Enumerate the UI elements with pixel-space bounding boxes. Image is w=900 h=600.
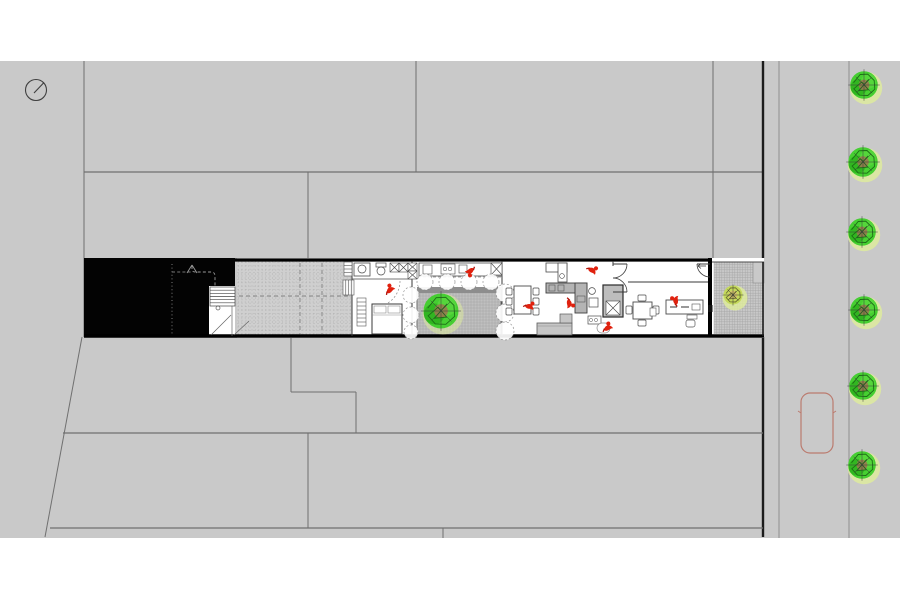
chair [638,320,646,326]
chair [626,306,632,314]
architectural-site-plan [0,0,900,600]
wc-fixture [589,298,598,307]
cabinet [650,308,656,316]
duct-box [390,263,399,272]
shrub-scallop [404,325,418,339]
dining-table [514,286,531,314]
duct-box [408,271,417,279]
toilet-bowl [377,267,385,275]
fridge [491,263,502,275]
chair [533,308,539,315]
sofa [537,323,572,335]
stairs-small [343,280,354,295]
shrub-scallop [439,274,455,290]
desk-chair [686,320,695,327]
basin [589,288,596,295]
office-table [633,302,652,319]
keyboard-tray [687,315,697,319]
shower [606,301,620,315]
bed [372,304,402,334]
gate-pivot [708,305,713,312]
toilet-tank [376,263,386,267]
chair [533,288,539,295]
duct-box [399,263,408,272]
chair [638,295,646,301]
closet-ladder [357,298,366,326]
corner-sink [560,274,565,279]
shrub-scallop [403,287,419,303]
chair [506,288,512,295]
stairs-small [344,262,352,276]
shrub-scallop [403,307,419,323]
kitchen-corner-counter [558,263,567,282]
site-plan-svg [0,0,900,600]
chair [506,298,512,305]
stairs-main [210,287,235,306]
shrub-scallop [496,322,514,340]
shrub-scallop [483,274,499,290]
duct-box [408,263,417,271]
chair [506,308,512,315]
shrub-scallop [417,274,433,290]
sofa-chaise [560,314,572,323]
